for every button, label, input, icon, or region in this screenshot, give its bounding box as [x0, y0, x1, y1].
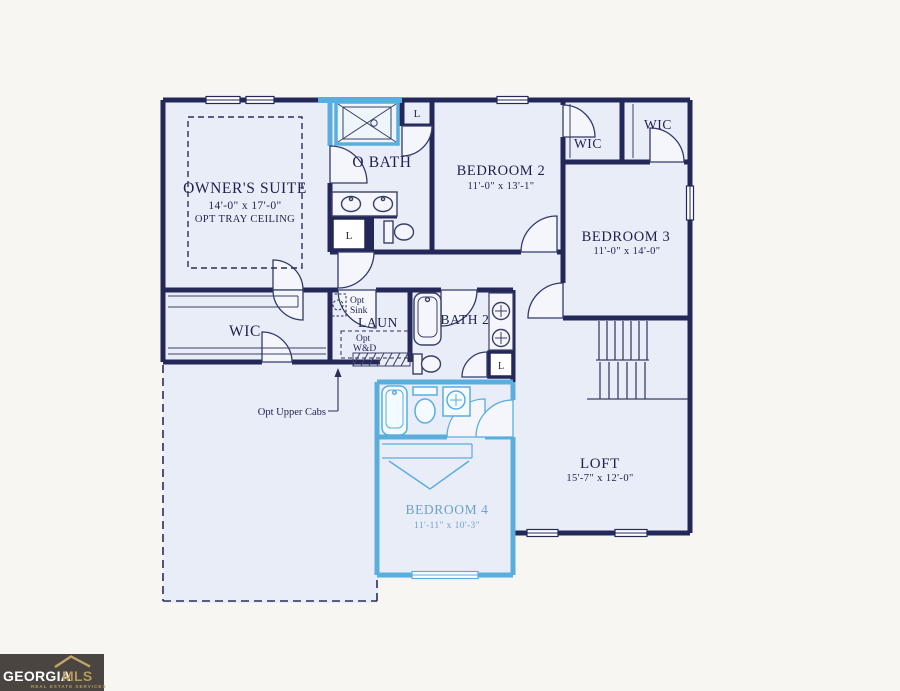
obath-toilet	[395, 224, 414, 240]
georgia-mls-logo: GEORGIA MLS REAL ESTATE SERVICES	[0, 654, 107, 691]
bath2-toilet	[422, 356, 441, 372]
logo-georgia-text: GEORGIA	[3, 668, 71, 684]
opt-wd-label-line1: Opt	[356, 334, 371, 344]
obath-toilet-tank	[384, 221, 393, 243]
linen-label-obath-top: L	[414, 108, 421, 120]
bedroom2-label: BEDROOM 2	[457, 163, 546, 179]
logo-tagline-text: REAL ESTATE SERVICES	[31, 684, 107, 689]
opt-upper-cabs-label: Opt Upper Cabs	[258, 407, 326, 418]
wic-small-label: WIC	[574, 136, 602, 151]
logo-mls-text: MLS	[62, 668, 92, 684]
owners-suite-note: OPT TRAY CEILING	[195, 214, 295, 225]
bed4-toilet-tank	[413, 387, 437, 395]
opt-sink-label-line2: Sink	[350, 306, 368, 316]
bed4-toilet	[415, 399, 435, 423]
bedroom3-label: BEDROOM 3	[582, 229, 671, 245]
obath-label: O BATH	[352, 154, 411, 171]
bedroom4-dims: 11'-11" x 10'-3"	[414, 521, 480, 531]
bedroom3-dims: 11'-0" x 14'-0"	[594, 246, 661, 257]
wic-right-label: WIC	[644, 117, 672, 132]
bedroom2-dims: 11'-0" x 13'-1"	[468, 181, 535, 192]
open-area-fill	[163, 362, 378, 603]
floorplan-svg: OWNER'S SUITE 14'-0" x 17'-0" OPT TRAY C…	[0, 0, 900, 691]
bath2-toilet-tank	[413, 354, 422, 374]
opt-wd-label-line2: W&D	[353, 344, 376, 354]
linen-label-obath-lower: L	[346, 230, 353, 242]
bath2-label: BATH 2	[441, 312, 490, 327]
wic-left-label: WIC	[229, 323, 261, 340]
laundry-label: LAUN	[358, 315, 398, 330]
loft-label: LOFT	[580, 456, 620, 472]
owners-suite-label: OWNER'S SUITE	[183, 180, 307, 197]
loft-dims: 15'-7" x 12'-0"	[566, 473, 633, 484]
bedroom4-label: BEDROOM 4	[405, 502, 488, 517]
floorplan-screenshot: OWNER'S SUITE 14'-0" x 17'-0" OPT TRAY C…	[0, 0, 900, 691]
opt-sink-label-line1: Opt	[350, 296, 365, 306]
owners-suite-dims: 14'-0" x 17'-0"	[208, 200, 281, 212]
linen-label-bath2: L	[498, 361, 504, 372]
